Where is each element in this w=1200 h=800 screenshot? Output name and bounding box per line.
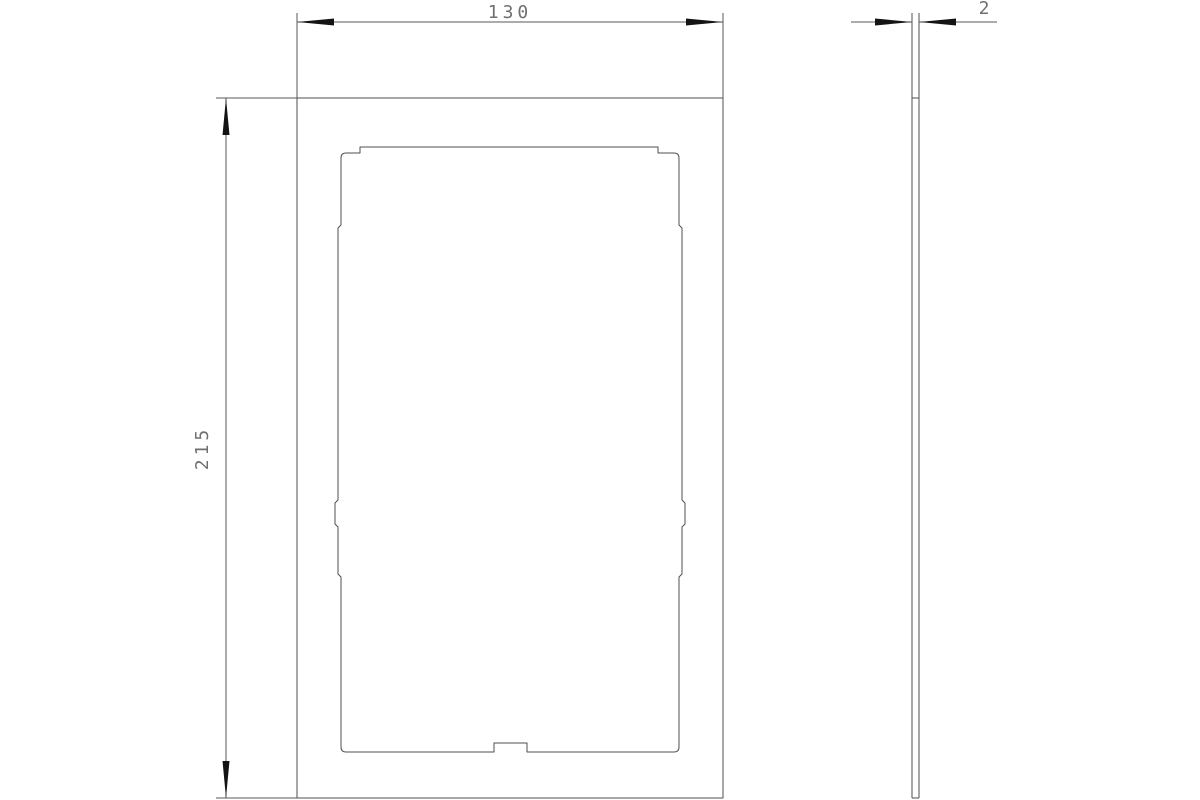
dimension-height-arrow-top xyxy=(223,98,230,135)
dimension-thickness-arrow-right xyxy=(919,19,956,26)
dimension-width-arrow-left xyxy=(297,19,334,26)
dimension-height-arrow-bottom xyxy=(223,761,230,798)
dimension-width: 130 xyxy=(297,2,723,98)
technical-drawing-svg: 130 215 2 xyxy=(0,0,1200,800)
front-view-outer-outline xyxy=(297,98,723,798)
dimension-thickness-label: 2 xyxy=(979,0,994,19)
dimension-height: 215 xyxy=(192,98,297,798)
dimension-width-lines xyxy=(297,13,723,98)
front-view-cutout-outline xyxy=(335,147,685,752)
front-view xyxy=(297,98,723,798)
dimension-thickness-arrow-left xyxy=(875,19,912,26)
drawing-canvas: 130 215 2 xyxy=(0,0,1200,800)
dimension-width-label: 130 xyxy=(488,2,533,23)
dimension-thickness: 2 xyxy=(851,0,997,26)
dimension-height-label: 215 xyxy=(192,426,213,471)
dimension-width-arrow-right xyxy=(686,19,723,26)
side-view-outline xyxy=(912,13,919,798)
side-view xyxy=(912,13,919,798)
dimension-height-lines xyxy=(216,98,297,798)
